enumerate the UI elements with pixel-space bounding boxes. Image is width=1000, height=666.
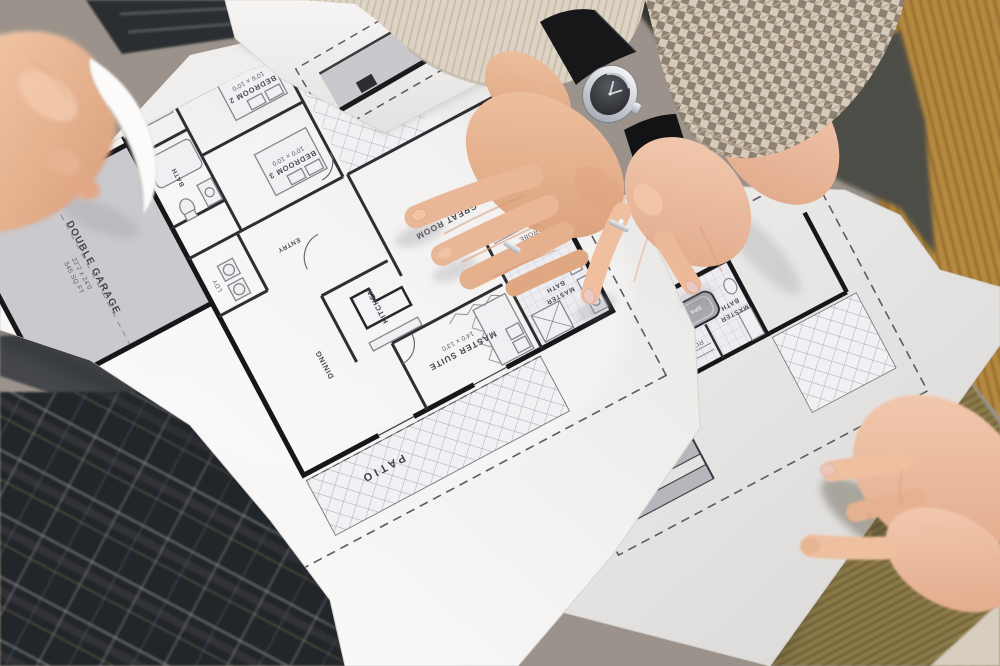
folded-finger (856, 498, 916, 512)
thumb-tip (800, 538, 820, 554)
scene-canvas: MASTER BATH ROBE SPA TUB (0, 0, 1000, 666)
thumb (812, 546, 886, 548)
index-finger (832, 462, 902, 471)
photo-scene: MASTER BATH ROBE SPA TUB (0, 0, 1000, 666)
